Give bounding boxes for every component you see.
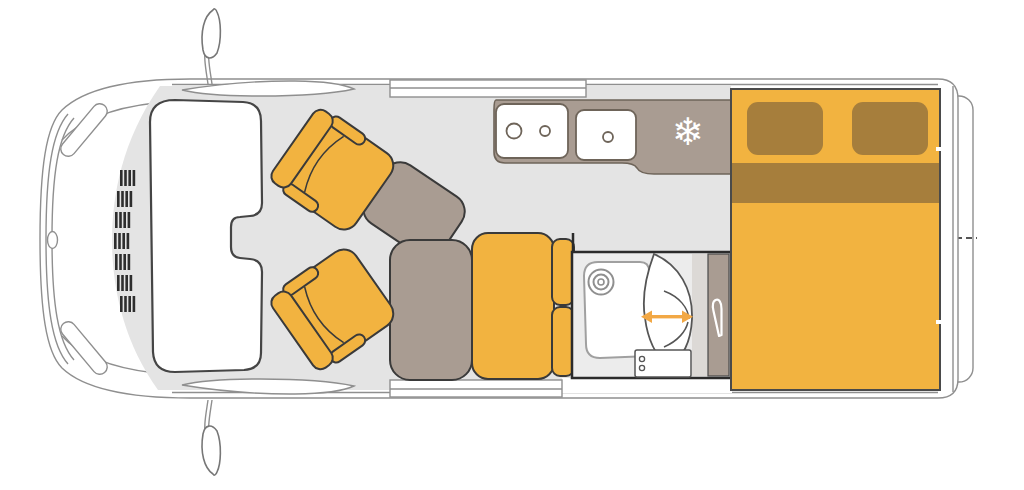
pillow-right [852,102,928,155]
stove [496,104,568,158]
blanket-band [732,163,939,203]
sink-drain [603,132,613,142]
sliding-door-top [390,80,586,97]
burner-large [507,124,522,139]
front-emblem [48,232,58,249]
bed-edge-tick-top [936,147,945,151]
pillow-left [747,102,823,155]
shower-drain [589,270,614,295]
bed-edge-tick-bottom [936,320,945,324]
wardrobe [708,254,729,376]
bed [731,89,945,390]
snowflake-icon: ❄ [672,110,704,154]
sliding-door-bottom [390,380,562,397]
side-mirror-bottom [202,400,220,475]
wardrobe-track [692,254,708,376]
sink [576,110,636,160]
bottom-wall-clearing [562,378,732,393]
floorplan-canvas: ❄ [0,0,1024,490]
side-mirror-top [202,9,220,84]
dining-table [390,240,472,380]
toilet [635,350,691,377]
burner-small [540,126,550,136]
wet-bath [572,252,731,378]
